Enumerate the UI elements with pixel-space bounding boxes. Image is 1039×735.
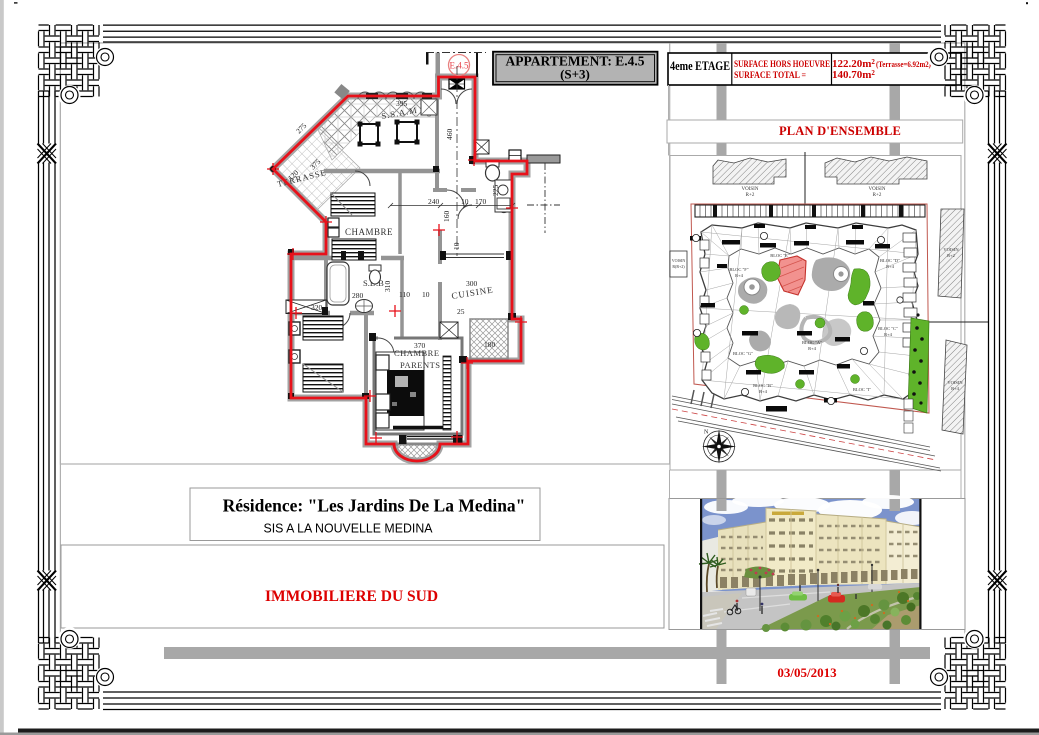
svg-text:SURFACE HORS HOEUVRE: SURFACE HORS HOEUVRE	[734, 60, 830, 70]
svg-text:BLOC "G": BLOC "G"	[733, 351, 753, 356]
svg-text:03/05/2013: 03/05/2013	[777, 665, 837, 680]
svg-text:VOISIN: VOISIN	[869, 187, 886, 192]
svg-text:SURFACE TOTAL =: SURFACE TOTAL =	[734, 71, 806, 81]
svg-text:370: 370	[414, 341, 426, 350]
svg-text:4eme ETAGE: 4eme ETAGE	[670, 59, 730, 73]
svg-text:BLOC "A": BLOC "A"	[802, 340, 822, 345]
svg-text:10: 10	[422, 290, 430, 299]
svg-text:CHAMBRE: CHAMBRE	[345, 227, 393, 237]
svg-text:240: 240	[428, 197, 440, 206]
svg-text:460: 460	[445, 129, 454, 141]
svg-text:BLOC "I": BLOC "I"	[853, 387, 871, 392]
svg-text:VOISIN: VOISIN	[943, 247, 959, 252]
svg-text:N: N	[704, 430, 709, 436]
svg-text:(Terrasse=6.92m2): (Terrasse=6.92m2)	[876, 60, 931, 69]
svg-text:280: 280	[352, 291, 364, 300]
svg-text:160: 160	[442, 211, 451, 223]
svg-text:PLAN D'ENSEMBLE: PLAN D'ENSEMBLE	[779, 124, 901, 138]
svg-text:PARENTS: PARENTS	[400, 360, 441, 370]
svg-text:225: 225	[491, 185, 500, 197]
svg-text:110: 110	[399, 290, 410, 299]
svg-text:R+4: R+4	[951, 386, 960, 391]
svg-text:10: 10	[461, 197, 469, 206]
svg-text:R(R+2): R(R+2)	[672, 264, 685, 269]
svg-text:300: 300	[466, 279, 478, 288]
svg-text:170: 170	[475, 197, 487, 206]
svg-text:25: 25	[457, 307, 465, 316]
svg-text:VOISIN: VOISIN	[947, 380, 963, 385]
svg-text:310: 310	[383, 281, 392, 293]
svg-text:320: 320	[311, 303, 323, 312]
svg-text:R+4: R+4	[808, 346, 817, 351]
svg-text:180: 180	[484, 340, 496, 349]
svg-text:R+2: R+2	[947, 253, 955, 258]
svg-text:R+2: R+2	[746, 193, 755, 198]
svg-text:10: 10	[452, 242, 461, 250]
svg-text:VOISIN: VOISIN	[672, 258, 686, 263]
svg-text:VOISIN: VOISIN	[742, 187, 759, 192]
svg-text:IMMOBILIERE DU SUD: IMMOBILIERE DU SUD	[265, 588, 438, 605]
svg-text:(S+3): (S+3)	[560, 67, 590, 82]
svg-text:BLOC "D": BLOC "D"	[880, 258, 900, 263]
svg-text:R+4: R+4	[735, 273, 744, 278]
svg-text:BLOC "B": BLOC "B"	[753, 383, 773, 388]
svg-text:E.4.5: E.4.5	[450, 61, 469, 71]
svg-text:BLOC "F": BLOC "F"	[729, 267, 748, 272]
svg-text:R+4: R+4	[884, 332, 893, 337]
svg-text:SIS A LA NOUVELLE MEDINA: SIS A LA NOUVELLE MEDINA	[264, 521, 433, 536]
svg-text:R+4: R+4	[886, 264, 895, 269]
svg-text:BLOC "C": BLOC "C"	[878, 326, 898, 331]
svg-text:R+4: R+4	[759, 389, 768, 394]
svg-text:395: 395	[396, 99, 408, 108]
svg-text:BLOC "E": BLOC "E"	[770, 253, 790, 258]
svg-text:Résidence: "Les Jardins De La: Résidence: "Les Jardins De La Medina"	[223, 496, 526, 516]
svg-text:R+2: R+2	[873, 193, 882, 198]
svg-text:140.70m2: 140.70m2	[832, 69, 875, 81]
